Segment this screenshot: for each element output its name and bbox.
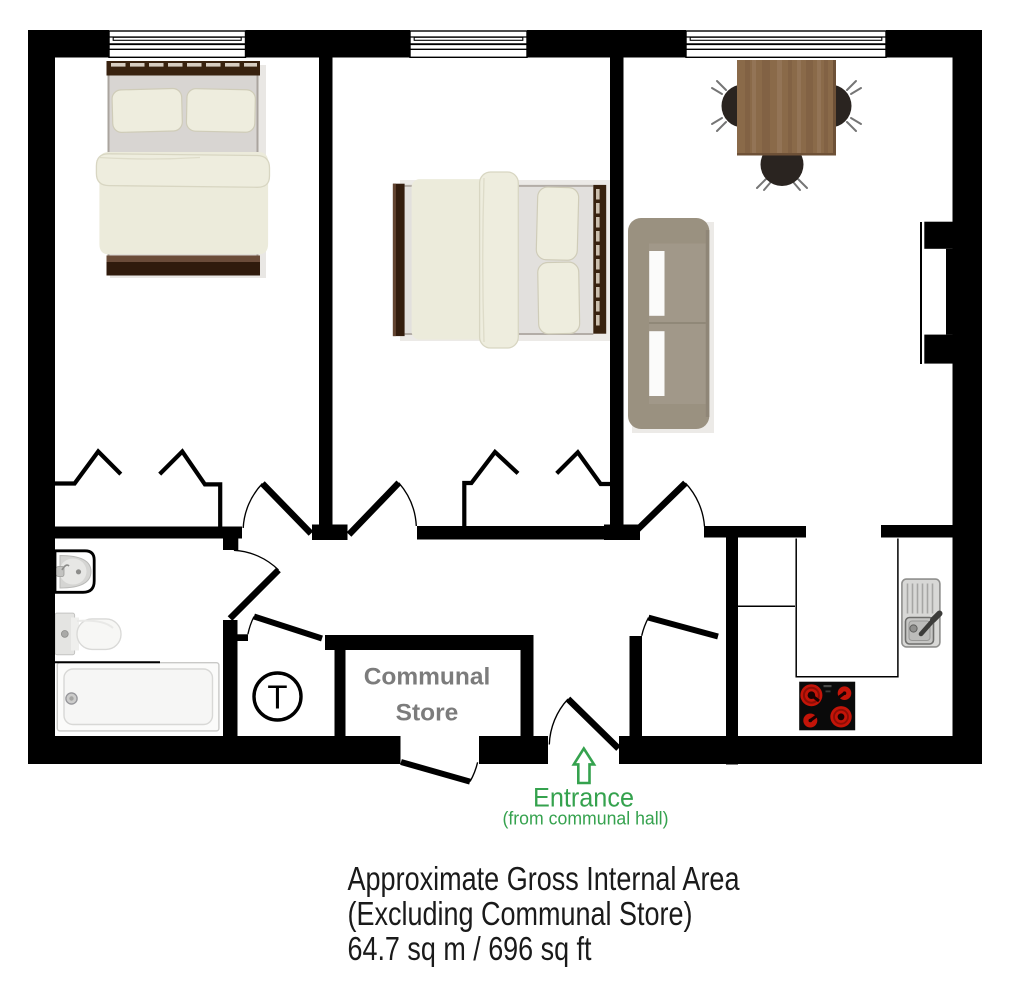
svg-text:64.7 sq m / 696 sq ft: 64.7 sq m / 696 sq ft xyxy=(348,930,592,967)
svg-text:(Excluding Communal Store): (Excluding Communal Store) xyxy=(348,895,693,932)
svg-text:(from communal hall): (from communal hall) xyxy=(503,809,669,829)
svg-text:Store: Store xyxy=(396,700,459,727)
svg-text:Approximate Gross Internal Are: Approximate Gross Internal Area xyxy=(348,860,741,897)
svg-text:Communal: Communal xyxy=(364,664,491,691)
svg-text:T: T xyxy=(267,679,287,716)
